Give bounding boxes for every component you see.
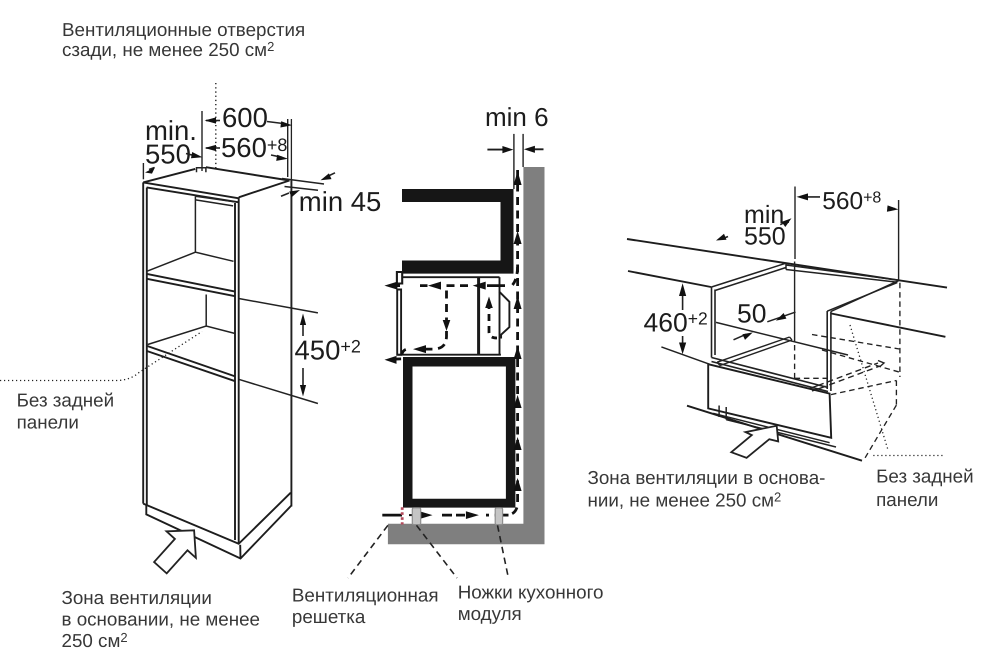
- svg-text:Вентиляционные отверстия: Вентиляционные отверстия: [62, 19, 305, 40]
- svg-text:Зона вентиляции: Зона вентиляции: [62, 587, 212, 608]
- svg-text:панели: панели: [17, 412, 79, 433]
- svg-text:460+2: 460+2: [644, 308, 708, 338]
- svg-text:Ножки кухонного: Ножки кухонного: [458, 582, 604, 603]
- svg-text:сзади, не менее 250 см2: сзади, не менее 250 см2: [62, 39, 274, 60]
- svg-text:600: 600: [222, 102, 268, 133]
- svg-text:модуля: модуля: [458, 603, 522, 624]
- svg-text:min 6: min 6: [485, 102, 549, 132]
- svg-text:50: 50: [737, 299, 766, 329]
- svg-text:Зона вентиляции в основа-: Зона вентиляции в основа-: [588, 467, 826, 488]
- svg-text:550: 550: [744, 222, 786, 250]
- svg-text:нии, не менее 250 см2: нии, не менее 250 см2: [588, 490, 782, 511]
- svg-text:решетка: решетка: [292, 606, 366, 627]
- svg-text:панели: панели: [876, 489, 938, 510]
- svg-text:450+2: 450+2: [295, 335, 361, 366]
- svg-text:Без задней: Без задней: [17, 389, 115, 410]
- svg-text:Вентиляционная: Вентиляционная: [292, 585, 439, 606]
- svg-text:min 45: min 45: [299, 186, 382, 217]
- svg-text:550: 550: [145, 139, 191, 170]
- svg-text:в основании, не менее: в основании, не менее: [62, 609, 261, 630]
- svg-text:560+8: 560+8: [822, 188, 881, 215]
- svg-text:250 см2: 250 см2: [62, 630, 128, 651]
- svg-text:Без задней: Без задней: [876, 466, 974, 487]
